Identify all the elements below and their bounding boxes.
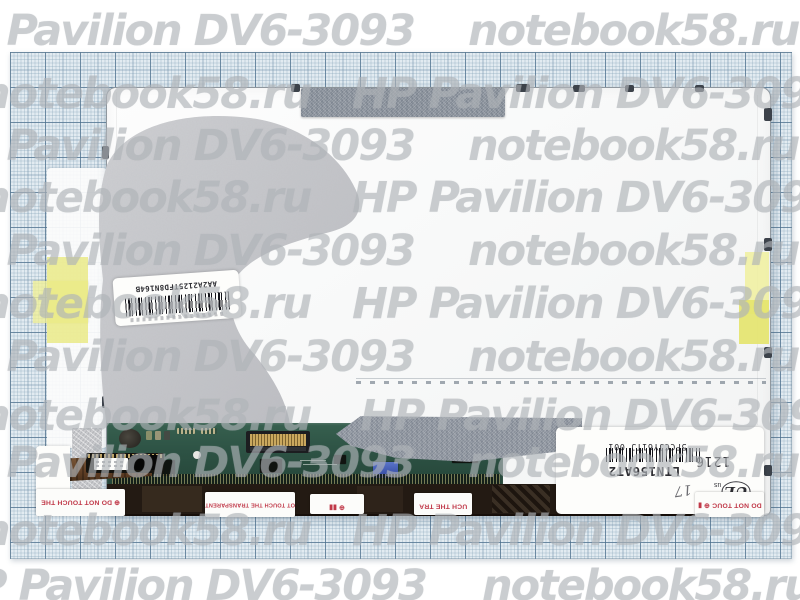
smd-pad-row [177, 428, 195, 434]
inductor [119, 429, 141, 448]
label-model: LTN156AT2 [608, 464, 680, 479]
ic-chip [260, 459, 282, 473]
yellow-tape-right-lower [739, 300, 769, 344]
smd-pad-row [201, 428, 217, 434]
warning-label-left: ⊕ DO NOT TOUCH THE DO NOT TOUCH THE [36, 489, 125, 516]
mount-tab [764, 238, 772, 251]
watermark-row: HP Pavilion DV6-3093notebook58.ru [0, 563, 800, 600]
mount-tab [625, 85, 634, 92]
silkscreen [300, 460, 326, 461]
warning-text: DO NOT TOUCH THE TRANSPARENT [205, 500, 295, 509]
warning-text: UCH THE TRA [419, 500, 467, 511]
mount-tab [764, 465, 772, 476]
ribbon-connector [86, 453, 164, 473]
silkscreen [303, 464, 337, 465]
mount-tab [516, 84, 530, 92]
panel-seam-line [356, 378, 766, 387]
warning-text: ⊕ DO NOT TOUCH THE [41, 496, 120, 507]
warning-text: DO NOT TOUC ⊕ ▮ [698, 499, 762, 510]
white-marker-dot [193, 451, 201, 459]
warning-label-stamps: ⊕ ▮▮ ▮ ⊕ [310, 494, 364, 514]
product-photo: AA2A2125TFD8N164B [0, 0, 800, 600]
warning-label-transparent: DO NOT TOUCH THE TRANSPARENT ⊕ DO NOT TO… [205, 492, 295, 517]
strip-hatched-segment [492, 485, 550, 513]
watermark-text: notebook58.ru [482, 563, 800, 600]
connector-mini-label [94, 458, 128, 470]
warning-label-mid-partial: UCH THE TRA UCH THE TRA [414, 493, 472, 515]
watermark-text: notebook58.ru [468, 8, 798, 54]
watermark-text: HP Pavilion DV6-3093 [0, 563, 426, 600]
mount-tab [573, 85, 585, 92]
smd-capacitor [146, 431, 152, 440]
side-label-code: AA2A2125TFD8N164B [135, 279, 217, 294]
lvds-connector [246, 431, 310, 453]
warning-label-right: DO NOT TOUC ⊕ ▮ ⊕ DO NOT TOU [695, 492, 764, 517]
mount-tab [764, 108, 772, 121]
label-barcode [606, 448, 700, 462]
yellow-tape-left-vertical [47, 257, 88, 343]
side-barcode-label: AA2A2125TFD8N164B [112, 270, 241, 327]
smd-capacitor [164, 431, 170, 440]
warning-text: ⊕ ▮▮ [329, 501, 345, 512]
warning-text: DO NOT TOUCH THE [45, 514, 116, 516]
handwritten-mark: 17 [673, 481, 693, 499]
mount-tab [764, 347, 772, 358]
smd-capacitor [155, 431, 161, 440]
mount-tab [291, 84, 300, 92]
watermark-row: HP Pavilion DV6-3093notebook58.ru [0, 8, 800, 54]
strip-segment [142, 486, 202, 512]
mount-tab [695, 85, 704, 92]
ic-chip [334, 455, 346, 464]
label-date-code: 1216 [695, 453, 730, 468]
watermark-text: HP Pavilion DV6-3093 [0, 8, 414, 54]
